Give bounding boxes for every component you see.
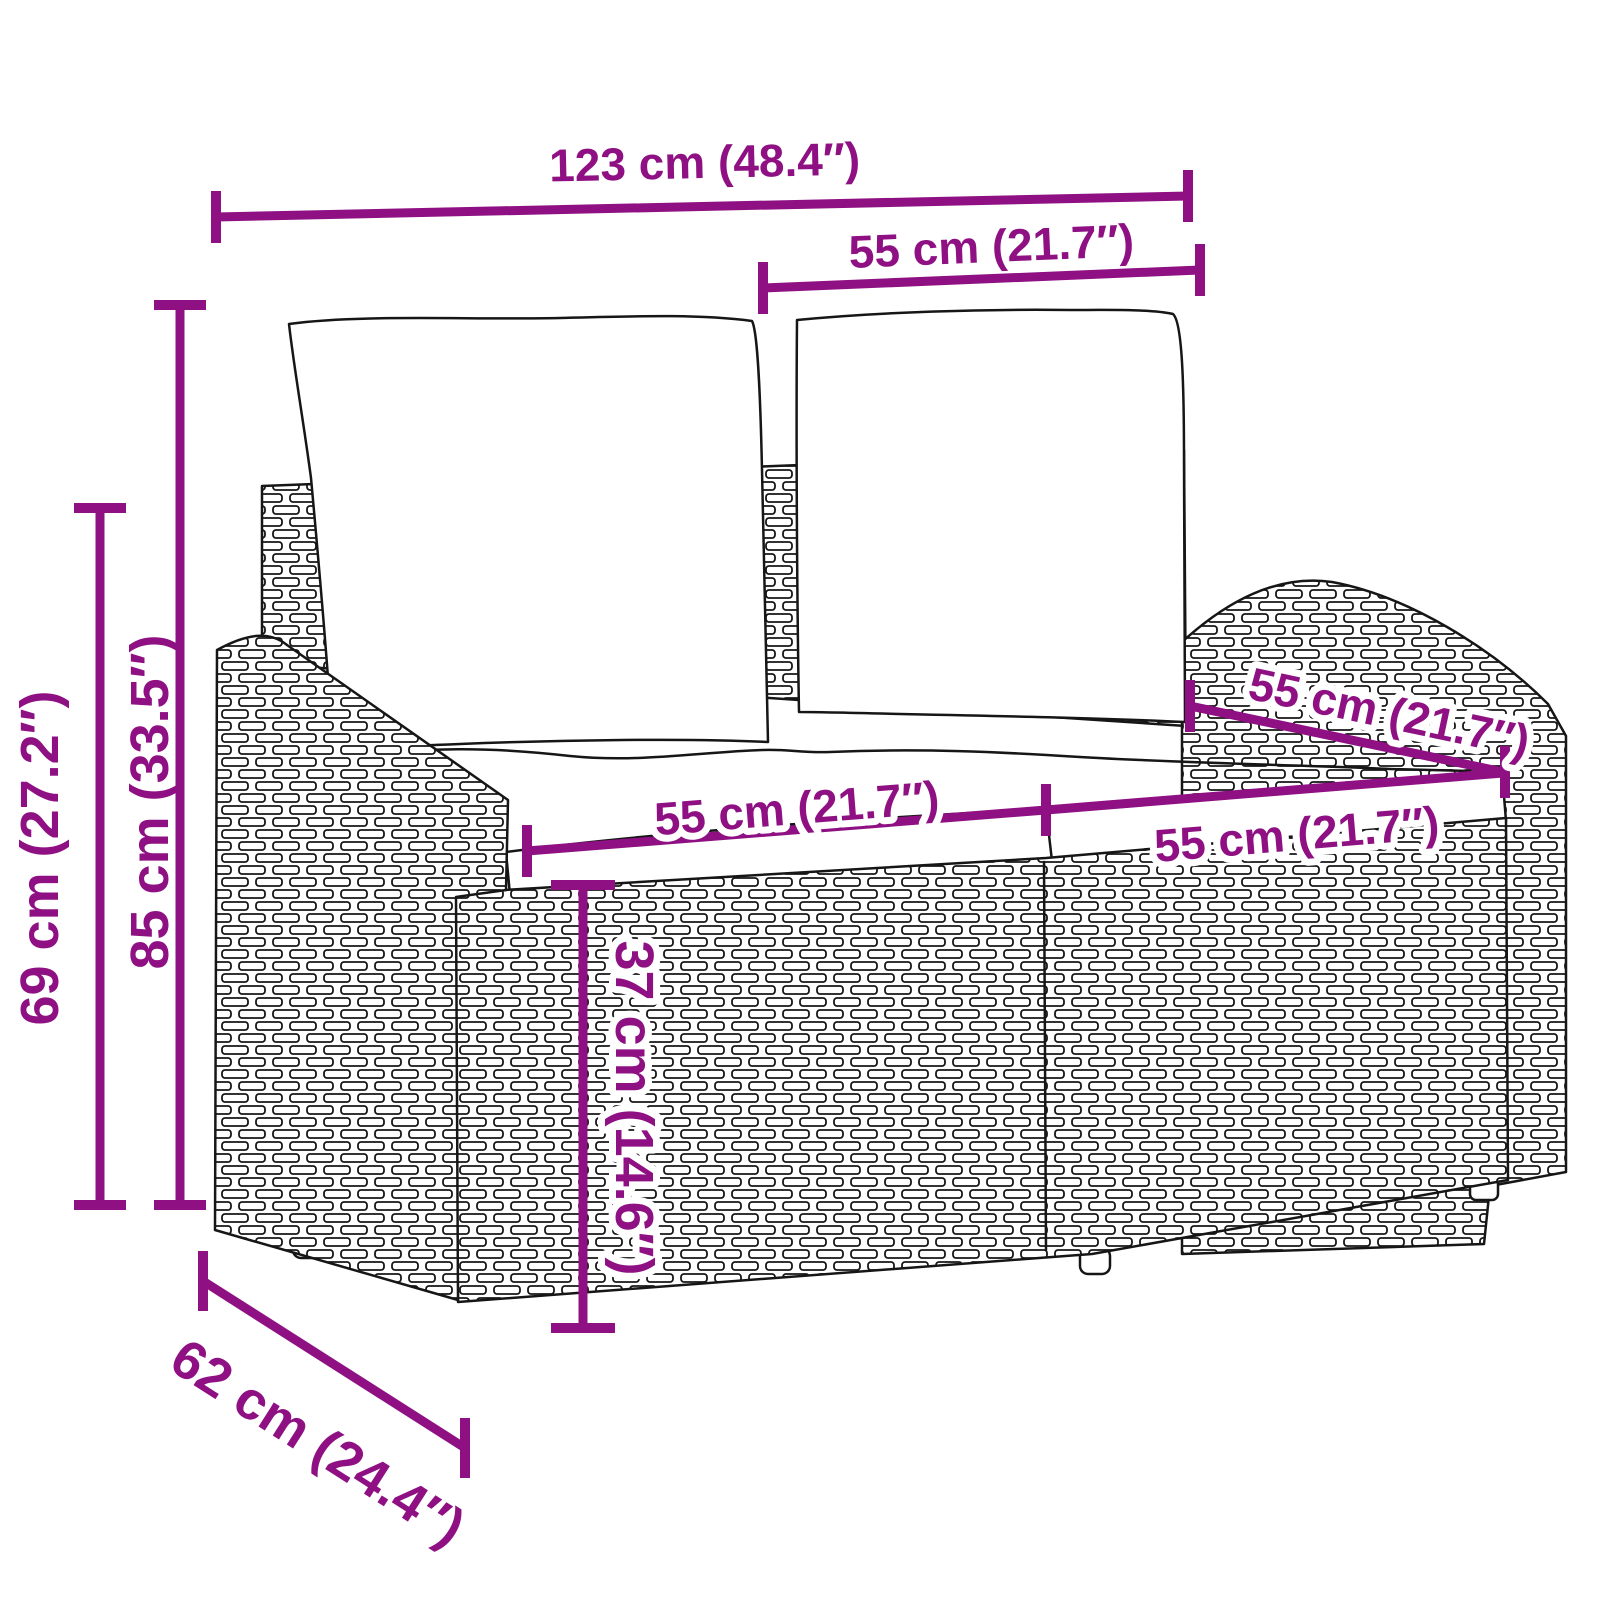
dimension-line <box>216 196 1188 217</box>
dimension-label-overall-width: 123 cm (48.4″) <box>549 132 861 191</box>
dimension-height-69: 69 cm (27.2″) <box>10 508 126 1205</box>
dimension-label-height-85: 85 cm (33.5″) <box>120 634 180 969</box>
dimension-diagram-svg: 123 cm (48.4″) 55 cm (21.7″) 69 cm (27.2… <box>0 0 1600 1600</box>
dimension-label-height-69: 69 cm (27.2″) <box>10 690 70 1025</box>
dimension-base-depth: 62 cm (24.4″) <box>160 1251 475 1558</box>
dimension-back-width: 55 cm (21.7″) <box>763 214 1200 314</box>
dimension-height-85: 85 cm (33.5″) <box>120 305 206 1205</box>
back-cushion-left <box>289 316 768 750</box>
back-cushion-right <box>797 310 1185 722</box>
diagram-canvas: 123 cm (48.4″) 55 cm (21.7″) 69 cm (27.2… <box>0 0 1600 1600</box>
dimension-label-base-depth: 62 cm (24.4″) <box>160 1328 475 1559</box>
dimension-label-back-width: 55 cm (21.7″) <box>848 214 1135 278</box>
dimension-line <box>763 270 1200 288</box>
dimension-label-seat-height: 37 cm (14.6″) <box>604 940 664 1275</box>
